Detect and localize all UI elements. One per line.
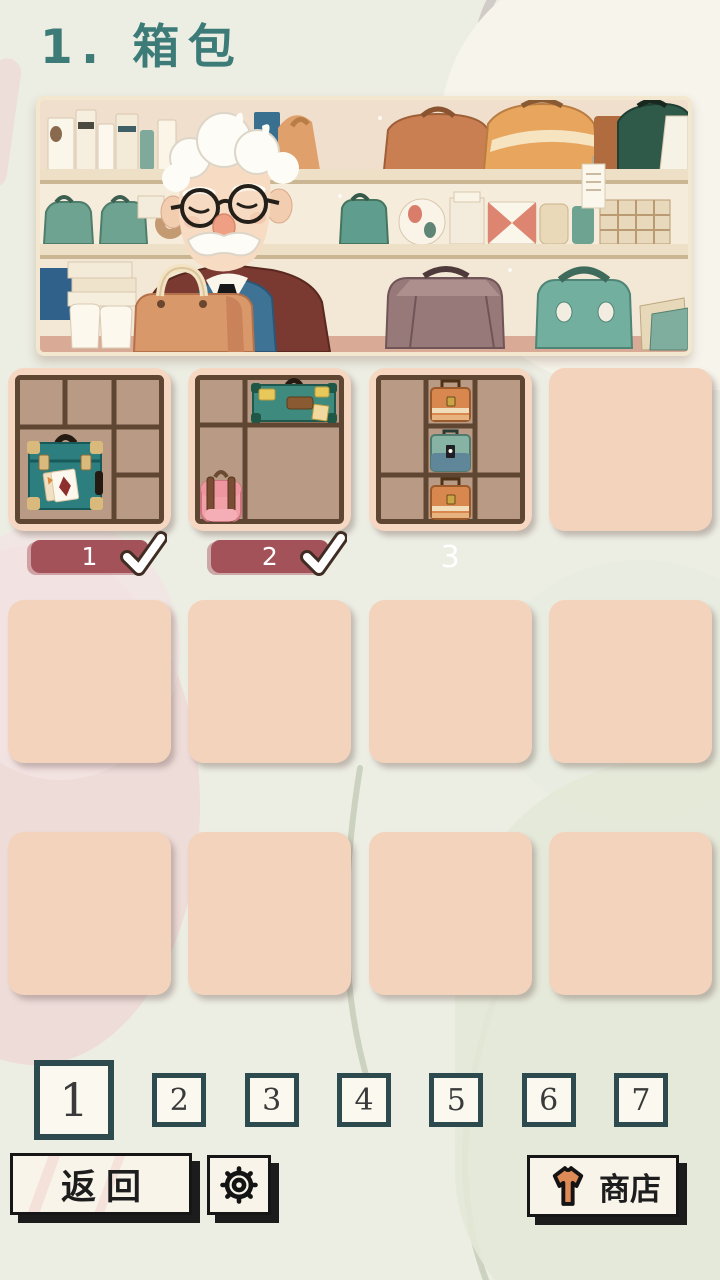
level-1-badge: 1: [31, 540, 149, 573]
trunk-icon: [251, 381, 337, 424]
page-button-1[interactable]: 1: [34, 1060, 114, 1140]
tshirt-icon: [545, 1165, 591, 1207]
satchel-orange-icon: [431, 381, 470, 421]
badge-slot: [549, 536, 712, 582]
page-button-4[interactable]: 4: [337, 1073, 391, 1127]
settings-button[interactable]: [207, 1155, 271, 1215]
level-card-empty: [549, 368, 712, 531]
level-number: 1: [82, 544, 98, 569]
shop-button[interactable]: 商店: [527, 1155, 679, 1217]
level-3-preview: [376, 375, 525, 524]
level-card-3[interactable]: [369, 368, 532, 531]
level-grid-row-1: [8, 368, 712, 531]
level-number: 2: [262, 544, 278, 569]
badge-slot: 3: [369, 536, 532, 582]
level-card-empty: [188, 832, 351, 995]
back-button[interactable]: 返回: [10, 1153, 192, 1215]
level-grid-row-3: [8, 832, 712, 995]
level-2-preview: [195, 375, 344, 524]
shopkeeper-illustration: [40, 100, 688, 352]
badge-slot: 1: [8, 536, 171, 582]
page-button-7[interactable]: 7: [614, 1073, 668, 1127]
badge-slot: 2: [188, 536, 351, 582]
checkmark-icon: [299, 530, 347, 578]
page-selector: 1 2 3 4 5 6 7: [34, 1058, 668, 1142]
shop-button-label: 商店: [599, 1164, 661, 1209]
level-card-1[interactable]: [8, 368, 171, 531]
satchel-teal-icon: [431, 431, 470, 471]
gear-icon: [217, 1163, 261, 1207]
page-button-3[interactable]: 3: [245, 1073, 299, 1127]
level-card-empty: [8, 832, 171, 995]
shop-banner: [36, 96, 692, 356]
level-3-number: 3: [441, 540, 460, 575]
page-button-2[interactable]: 2: [152, 1073, 206, 1127]
level-select-screen: 1. 箱包: [0, 0, 720, 1280]
level-card-empty: [188, 600, 351, 763]
level-2-badge: 2: [211, 540, 329, 573]
footer-bar: 返回 商店: [10, 1153, 710, 1228]
level-card-empty: [549, 600, 712, 763]
level-card-empty: [369, 832, 532, 995]
suitcase-icon: [27, 437, 103, 510]
level-1-preview: [15, 375, 164, 524]
satchel-orange-icon: [431, 479, 470, 519]
page-button-6[interactable]: 6: [522, 1073, 576, 1127]
level-grid-row-2: [8, 600, 712, 763]
level-card-empty: [369, 600, 532, 763]
level-card-empty: [8, 600, 171, 763]
back-button-label: 返回: [61, 1159, 151, 1210]
level-card-2[interactable]: [188, 368, 351, 531]
page-title: 1. 箱包: [40, 8, 243, 77]
level-card-empty: [549, 832, 712, 995]
page-button-5[interactable]: 5: [429, 1073, 483, 1127]
level-status-row: 1 2 3: [8, 536, 712, 582]
checkmark-icon: [119, 530, 167, 578]
